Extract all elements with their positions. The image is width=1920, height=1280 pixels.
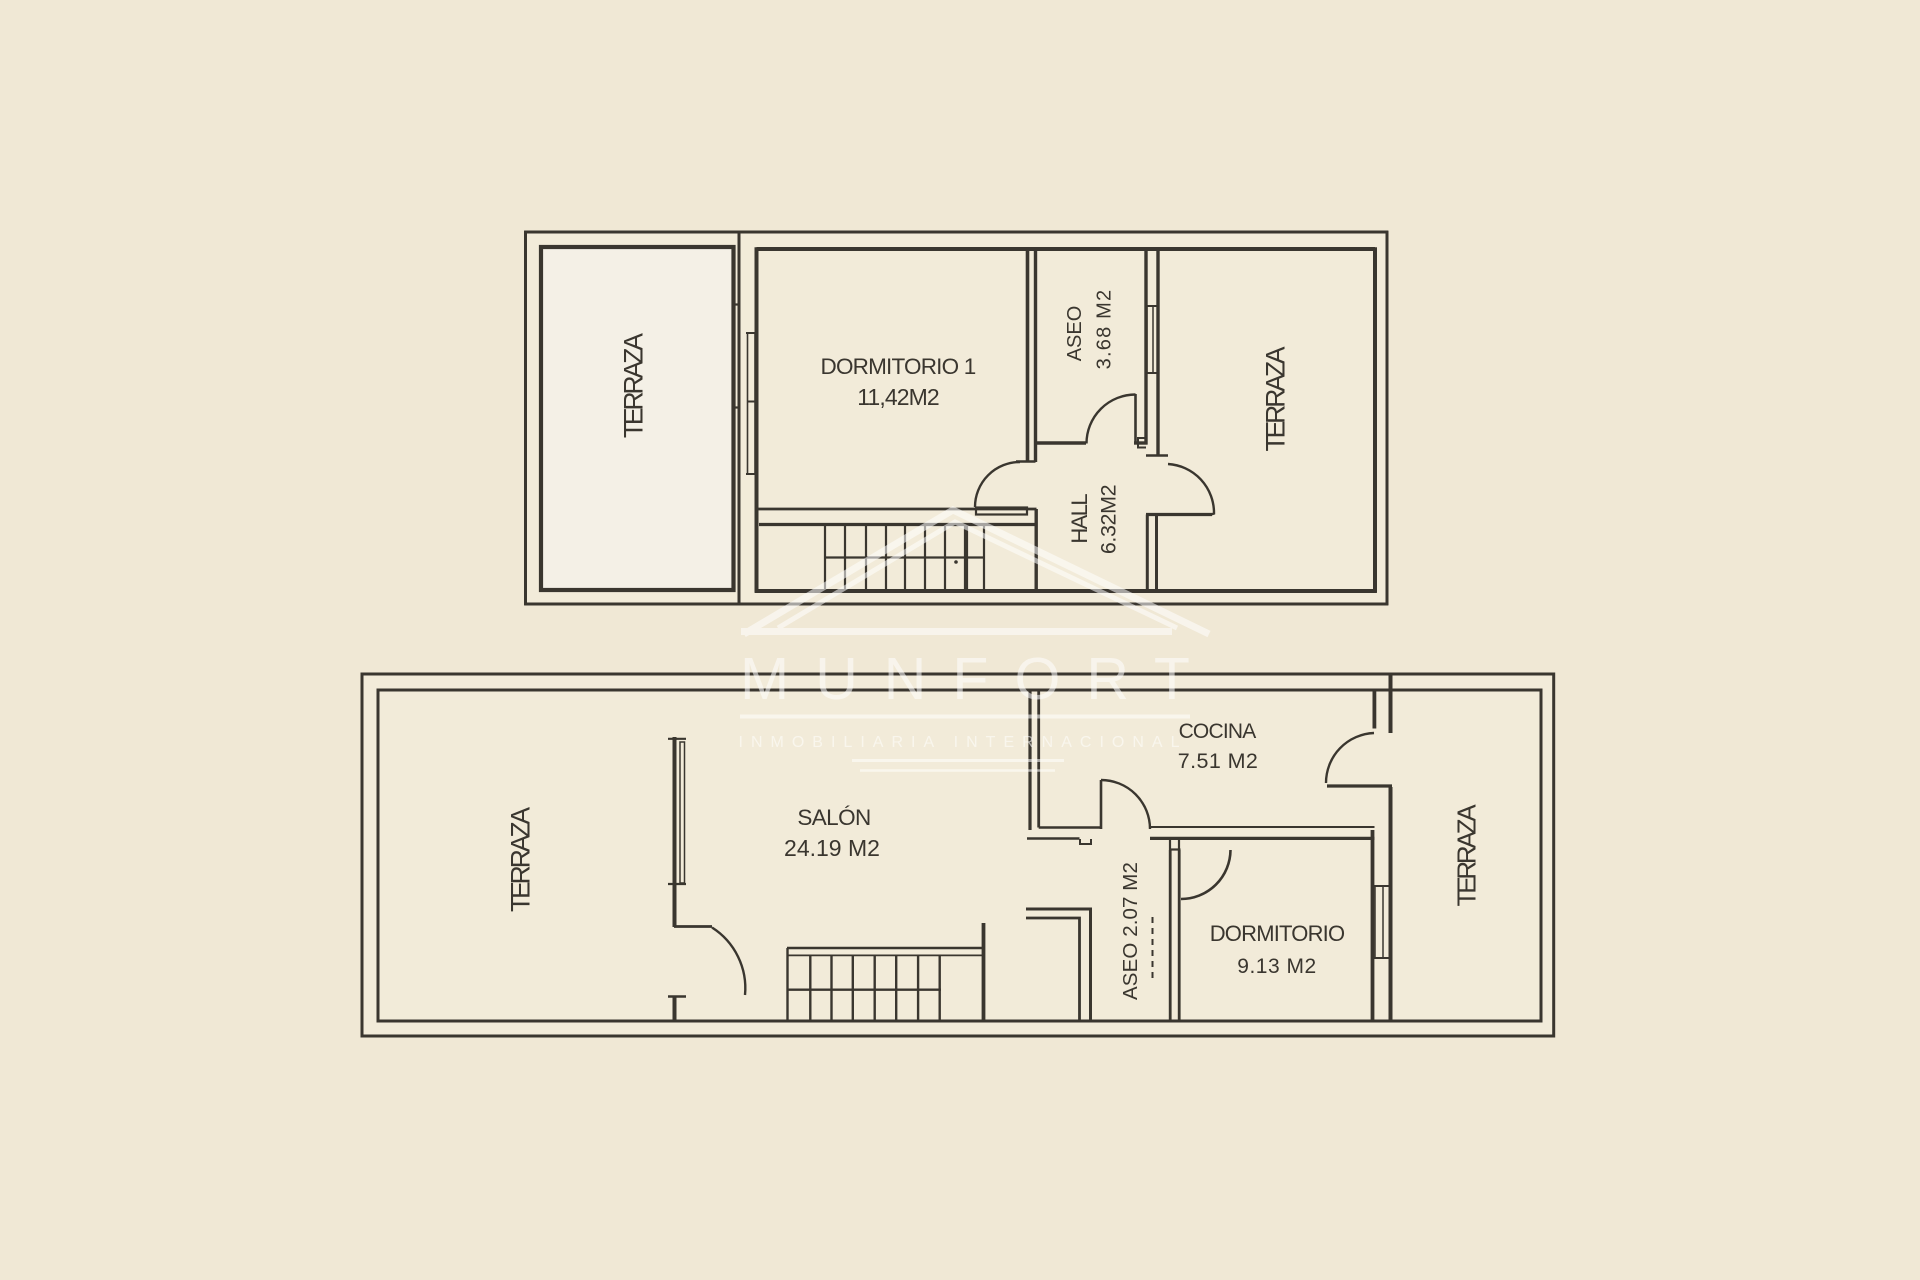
svg-text:11,42M2: 11,42M2 [857, 384, 939, 410]
svg-text:7.51 M2: 7.51 M2 [1178, 749, 1259, 773]
svg-text:TERRAZA: TERRAZA [619, 333, 649, 438]
svg-text:DORMITORIO: DORMITORIO [1210, 921, 1345, 946]
svg-text:6.32M2: 6.32M2 [1097, 485, 1121, 554]
svg-text:DORMITORIO 1: DORMITORIO 1 [821, 354, 976, 379]
svg-text:TERRAZA: TERRAZA [1261, 346, 1291, 451]
svg-text:HALL: HALL [1067, 494, 1092, 544]
svg-text:SALÓN: SALÓN [797, 805, 870, 830]
svg-text:INMOBILIARIA INTERNACIONAL: INMOBILIARIA INTERNACIONAL [739, 734, 1188, 751]
svg-text:ASEO: ASEO [1064, 306, 1086, 362]
svg-text:3.68 M2: 3.68 M2 [1093, 289, 1115, 370]
svg-text:9.13 M2: 9.13 M2 [1237, 955, 1316, 978]
svg-text:TERRAZA: TERRAZA [506, 807, 536, 912]
svg-text:COCINA: COCINA [1179, 720, 1257, 743]
svg-text:MUNFORT: MUNFORT [740, 646, 1216, 712]
svg-text:TERRAZA: TERRAZA [1452, 804, 1482, 907]
svg-text:24.19 M2: 24.19 M2 [784, 835, 880, 861]
svg-text:ASEO 2.07 M2: ASEO 2.07 M2 [1119, 862, 1142, 1000]
